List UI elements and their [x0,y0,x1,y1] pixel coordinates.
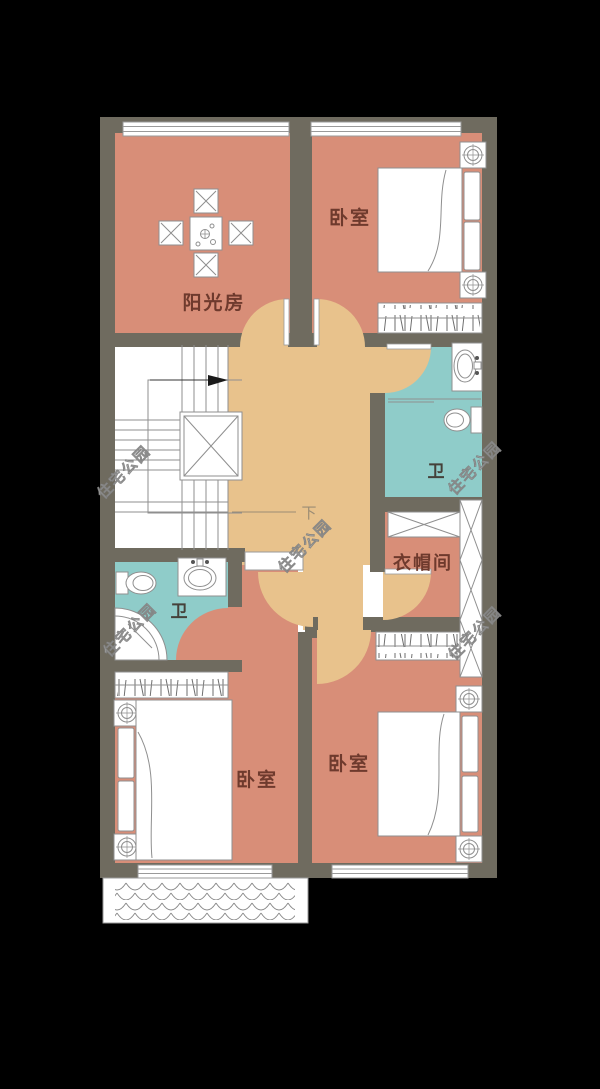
label-bedroom-bottom-left: 卧室 [236,768,278,791]
label-sunroom: 阳光房 [182,291,245,314]
headboard-cushion [118,781,134,831]
wall-bath-left-bottom [100,660,242,672]
faucet [197,559,203,566]
bed-mattress [378,168,462,272]
wardrobe-bedroom-bottom-left [115,672,228,698]
headboard-cushion [464,172,480,220]
wardrobe-bedroom-bottom-right [376,632,460,660]
label-bath-left: 卫 [171,602,188,621]
headboard-cushion [462,716,478,772]
floor-plan: 阳光房 卧室 卧室 卧室 衣帽间 卫 卫 下 住宅公园 住宅公园 住宅公园 住宅… [0,0,600,1089]
window-bedroom-bottom-left [138,865,272,878]
bed-mattress [136,700,232,860]
headboard-cushion [464,222,480,270]
wardrobe-bedroom-top-right [378,303,482,333]
window-sunroom-top [123,122,289,136]
faucet-dot [475,356,479,360]
faucet-dot [191,560,195,564]
door-leaf-sunroom [284,299,289,345]
toilet-right-tank [471,407,482,433]
bed-mattress [378,712,460,836]
wall-top-divider [290,133,312,347]
wall-hall-right [370,393,385,572]
wall-bedrooms-divider [298,632,312,863]
faucet-dot [205,560,209,564]
headboard-cushion [462,776,478,832]
label-closet: 衣帽间 [393,552,453,573]
wall-bath-left-right [228,562,242,607]
door-leaf-bath-right [387,344,431,349]
label-bath-right: 卫 [428,462,445,481]
window-bedroom-bottom-right [332,865,468,878]
label-bedroom-bottom-right: 卧室 [328,752,370,775]
faucet-dot [475,371,479,375]
window-bedroom-top [311,122,461,136]
label-bedroom-top-right: 卧室 [329,206,371,229]
wall-right [482,117,497,878]
hallway-floor [228,347,370,565]
door-leaf-bedroom-top [314,299,319,345]
headboard-cushion [118,728,134,778]
table [190,217,222,250]
faucet [474,362,481,369]
floor-plan-page: 阳光房 卧室 卧室 卧室 衣帽间 卫 卫 下 住宅公园 住宅公园 住宅公园 住宅… [0,0,600,1089]
hallway-bath-nook [363,347,385,393]
label-stairs-down: 下 [301,506,316,522]
wall-bedroom-right-top [363,617,460,632]
roof-tiles [103,878,308,923]
